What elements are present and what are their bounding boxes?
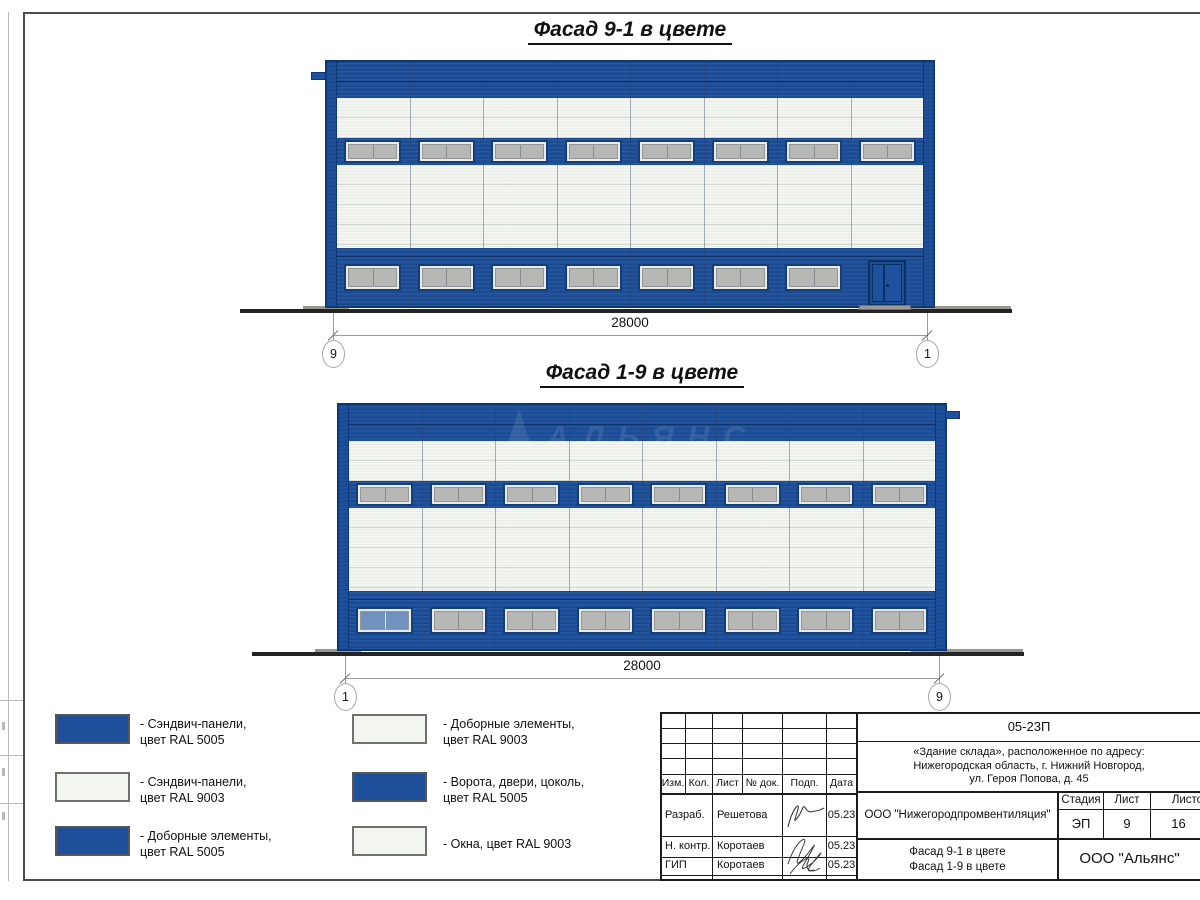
- facade-title: Фасад 9-1 в цвете: [325, 18, 935, 42]
- legend-label: - Доборные элементы,цвет RAL 5005: [140, 828, 272, 861]
- window-glass: [716, 144, 765, 159]
- facade-title: Фасад 1-9 в цвете: [337, 361, 947, 385]
- window: [785, 140, 842, 163]
- window-glass: [422, 268, 471, 287]
- panel-joint: [863, 405, 864, 649]
- frame-left-border: [23, 12, 25, 881]
- window-glass: [801, 611, 850, 630]
- panel-joint: [704, 62, 705, 306]
- tb-name-razrab: Решетова: [713, 795, 786, 836]
- window-glass: [728, 487, 777, 502]
- panel-joint: [777, 62, 778, 306]
- panel-joint: [557, 62, 558, 306]
- window: [871, 607, 928, 634]
- tb-sheets-value: 16: [1151, 810, 1200, 838]
- panel-joint: [630, 62, 631, 306]
- signature-korotaev: [782, 830, 828, 878]
- window: [356, 483, 413, 506]
- panel-joint: [851, 62, 852, 306]
- window: [797, 607, 854, 634]
- window: [871, 483, 928, 506]
- window: [859, 140, 916, 163]
- entrance-door: [868, 260, 906, 306]
- window: [577, 483, 634, 506]
- tb-col-izm: Изм.: [661, 774, 685, 793]
- window: [430, 607, 487, 634]
- tb-company: ООО "Альянс": [1059, 840, 1200, 879]
- window: [724, 607, 781, 634]
- legend-swatch-sandwich-5005: [55, 714, 130, 744]
- legend-label: - Сэндвич-панели,цвет RAL 5005: [140, 716, 246, 749]
- legend-swatch-windows-9003: [352, 826, 427, 856]
- tb-date-razrab: 05.23: [827, 795, 856, 836]
- tb-col-doc: № док.: [743, 774, 782, 793]
- tb-project-code: 05-23П: [858, 713, 1200, 741]
- window-glass: [581, 487, 630, 502]
- window-glass: [654, 487, 703, 502]
- corner-trim-right: [935, 405, 945, 649]
- window-glass: [360, 487, 409, 502]
- window: [344, 140, 401, 163]
- window-glass: [642, 268, 691, 287]
- frame-margin-divider: [0, 700, 23, 701]
- window-glass: [789, 268, 838, 287]
- facade-title-text: Фасад 1-9 в цвете: [540, 361, 744, 388]
- window: [650, 607, 707, 634]
- gutter-outlet: [311, 72, 326, 80]
- tb-object-address: «Здание склада», расположенное по адресу…: [858, 742, 1200, 791]
- window-glass: [581, 611, 630, 630]
- window: [430, 483, 487, 506]
- tb-role-ncontr: Н. контр.: [661, 836, 716, 857]
- window: [785, 264, 842, 291]
- tb-col-data: Дата: [827, 774, 856, 793]
- frame-margin-tick: [2, 768, 5, 776]
- window: [712, 140, 769, 163]
- building-facade: [325, 60, 935, 308]
- window: [491, 140, 548, 163]
- window-glass: [716, 268, 765, 287]
- panel-joint: [422, 405, 423, 649]
- window-glass: [507, 611, 556, 630]
- tb-name-gip: Коротаев: [713, 857, 786, 875]
- tb-stage-label: Стадия: [1059, 792, 1103, 809]
- dimension-value: 28000: [325, 315, 935, 330]
- tb-role-razrab: Разраб.: [661, 795, 716, 836]
- tb-col-list: Лист: [713, 774, 742, 793]
- frame-outer-left-line: [8, 12, 9, 881]
- window: [418, 140, 475, 163]
- tb-date-ncontr: 05.23: [827, 836, 856, 857]
- panel-joint: [483, 62, 484, 306]
- corner-trim-left: [339, 405, 349, 649]
- window: [797, 483, 854, 506]
- window-glass: [642, 144, 691, 159]
- tb-sheet-value: 9: [1104, 810, 1150, 838]
- tb-stage-value: ЭП: [1059, 810, 1103, 838]
- tb-date-gip: 05.23: [827, 857, 856, 875]
- window-glass: [422, 144, 471, 159]
- axis-marker: 9: [928, 683, 951, 711]
- legend-swatch-gates-5005: [352, 772, 427, 802]
- window-glass: [875, 487, 924, 502]
- corner-trim-right: [923, 62, 933, 306]
- title-block: Изм. Кол. Лист № док. Подп. Дата Разраб.…: [660, 712, 1200, 881]
- axis-marker: 1: [334, 683, 357, 711]
- tb-sheet-label: Лист: [1104, 792, 1150, 809]
- dimension-line: [345, 678, 939, 679]
- panel-joint: [495, 405, 496, 649]
- gutter-outlet: [945, 411, 960, 419]
- legend-label: - Сэндвич-панели,цвет RAL 9003: [140, 774, 246, 807]
- frame-margin-divider: [0, 803, 23, 804]
- window-glass: [569, 144, 618, 159]
- window: [503, 607, 560, 634]
- ground-line: [252, 652, 1024, 656]
- window-glass: [728, 611, 777, 630]
- tb-role-gip: ГИП: [661, 857, 716, 875]
- tb-sheets-label: Листов: [1151, 792, 1200, 809]
- window-glass: [875, 611, 924, 630]
- window-glass: [495, 268, 544, 287]
- frame-margin-divider: [0, 755, 23, 756]
- tb-org: ООО "Нижегородпромвентиляция": [858, 793, 1057, 838]
- window-glass: [360, 611, 409, 630]
- window: [503, 483, 560, 506]
- panel-joint: [716, 405, 717, 649]
- window-glass: [348, 144, 397, 159]
- frame-margin-tick: [2, 812, 5, 820]
- frame-margin-tick: [2, 722, 5, 730]
- door-leaf-narrow: [872, 264, 884, 302]
- drawing-sheet: { "facades": [ { "title": "Фасад 9-1 в ц…: [0, 0, 1200, 900]
- window: [638, 264, 695, 291]
- window: [491, 264, 548, 291]
- panel-joint: [410, 62, 411, 306]
- window: [650, 483, 707, 506]
- facade-title-text: Фасад 9-1 в цвете: [528, 18, 732, 45]
- tb-col-podp: Подп.: [783, 774, 826, 793]
- legend-swatch-trim-5005: [55, 826, 130, 856]
- window-glass: [495, 144, 544, 159]
- window-glass: [434, 611, 483, 630]
- window-glass: [654, 611, 703, 630]
- legend-swatch-sandwich-9003: [55, 772, 130, 802]
- watermark-logo-triangle: [505, 409, 533, 451]
- window-glass: [863, 144, 912, 159]
- panel-joint: [569, 405, 570, 649]
- window: [712, 264, 769, 291]
- frame-top-border: [23, 12, 1200, 14]
- window: [724, 483, 781, 506]
- window-glass: [507, 487, 556, 502]
- window-glass: [434, 487, 483, 502]
- legend-label: - Доборные элементы,цвет RAL 9003: [443, 716, 575, 749]
- tb-col-kol: Кол.: [686, 774, 712, 793]
- window-glass: [801, 487, 850, 502]
- window: [356, 607, 413, 634]
- legend-label: - Ворота, двери, цоколь,цвет RAL 5005: [443, 774, 584, 807]
- window: [638, 140, 695, 163]
- building-facade: [337, 403, 947, 651]
- window: [565, 264, 622, 291]
- legend-swatch-trim-9003: [352, 714, 427, 744]
- tb-content: Фасад 9-1 в цветеФасад 1-9 в цвете: [858, 840, 1057, 879]
- tb-name-ncontr: Коротаев: [713, 836, 786, 857]
- panel-joint: [642, 405, 643, 649]
- legend-label: - Окна, цвет RAL 9003: [443, 836, 571, 852]
- window: [565, 140, 622, 163]
- corner-trim-left: [327, 62, 337, 306]
- dimension-value: 28000: [337, 658, 947, 673]
- window: [344, 264, 401, 291]
- window-glass: [569, 268, 618, 287]
- window: [418, 264, 475, 291]
- door-step: [859, 305, 911, 310]
- dimension-line: [333, 335, 927, 336]
- panel-joint: [789, 405, 790, 649]
- window: [577, 607, 634, 634]
- window-glass: [348, 268, 397, 287]
- window-glass: [789, 144, 838, 159]
